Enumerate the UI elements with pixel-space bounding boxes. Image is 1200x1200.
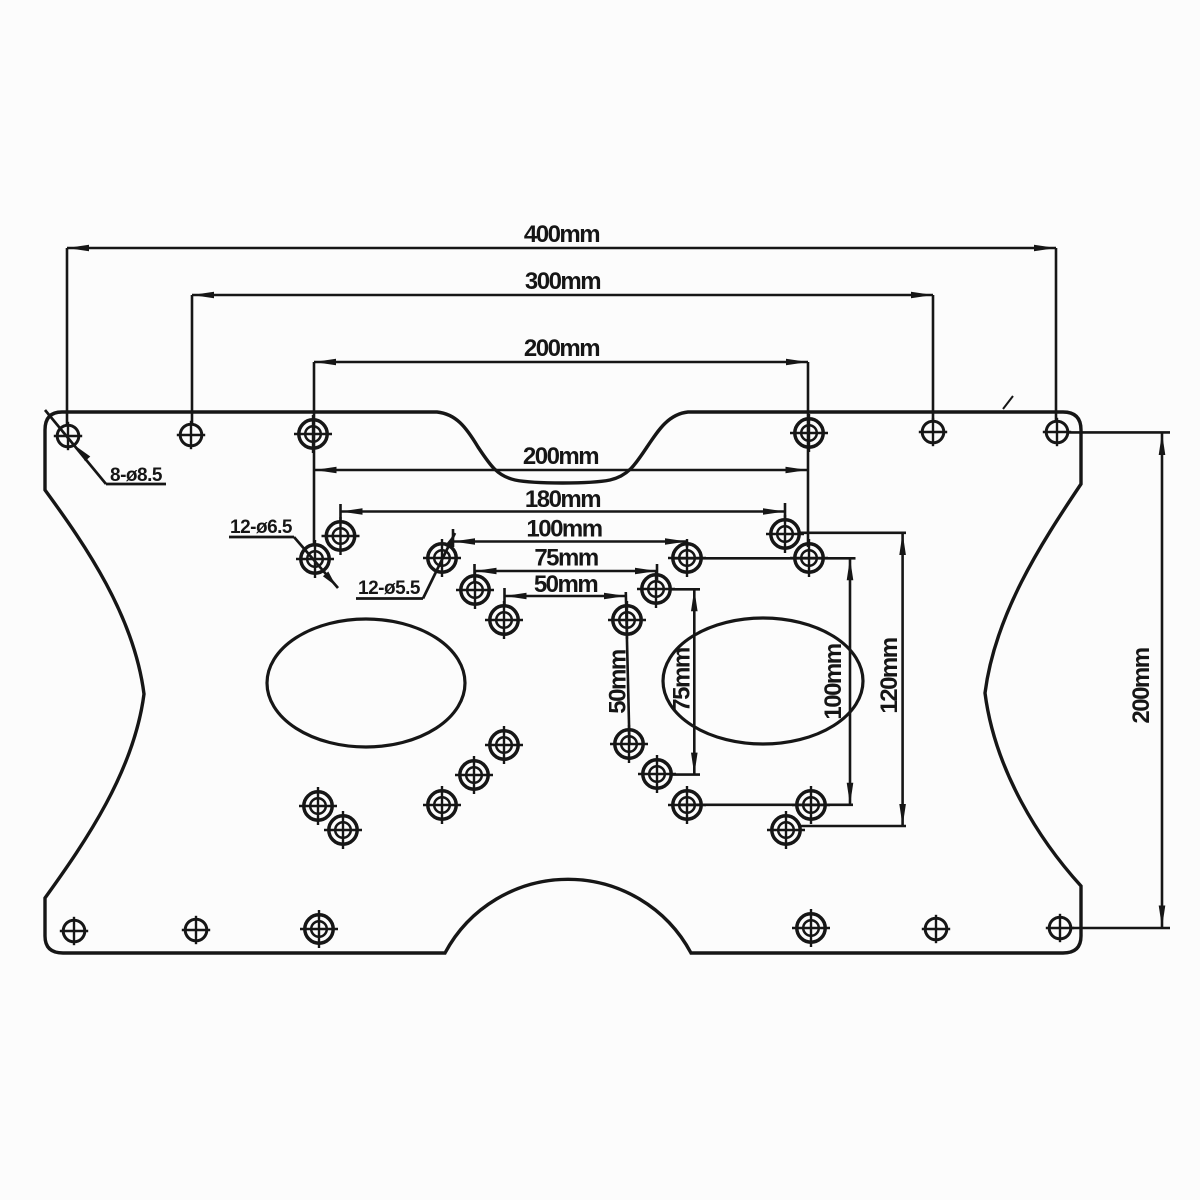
svg-text:120mm: 120mm [876, 638, 903, 713]
svg-text:75mm: 75mm [534, 545, 598, 572]
svg-text:200mm: 200mm [524, 335, 599, 362]
svg-text:75mm: 75mm [669, 648, 696, 712]
svg-text:12-ø5.5: 12-ø5.5 [358, 578, 421, 599]
svg-text:100mm: 100mm [526, 516, 601, 543]
svg-text:100mm: 100mm [820, 644, 847, 719]
svg-text:50mm: 50mm [534, 571, 598, 598]
svg-text:8-ø8.5: 8-ø8.5 [110, 465, 163, 486]
svg-text:180mm: 180mm [525, 486, 600, 513]
svg-text:200mm: 200mm [523, 443, 598, 470]
svg-text:200mm: 200mm [1128, 648, 1155, 723]
svg-text:300mm: 300mm [525, 268, 600, 295]
svg-text:12-ø6.5: 12-ø6.5 [230, 517, 293, 538]
svg-text:400mm: 400mm [524, 221, 599, 248]
svg-text:50mm: 50mm [605, 650, 632, 714]
